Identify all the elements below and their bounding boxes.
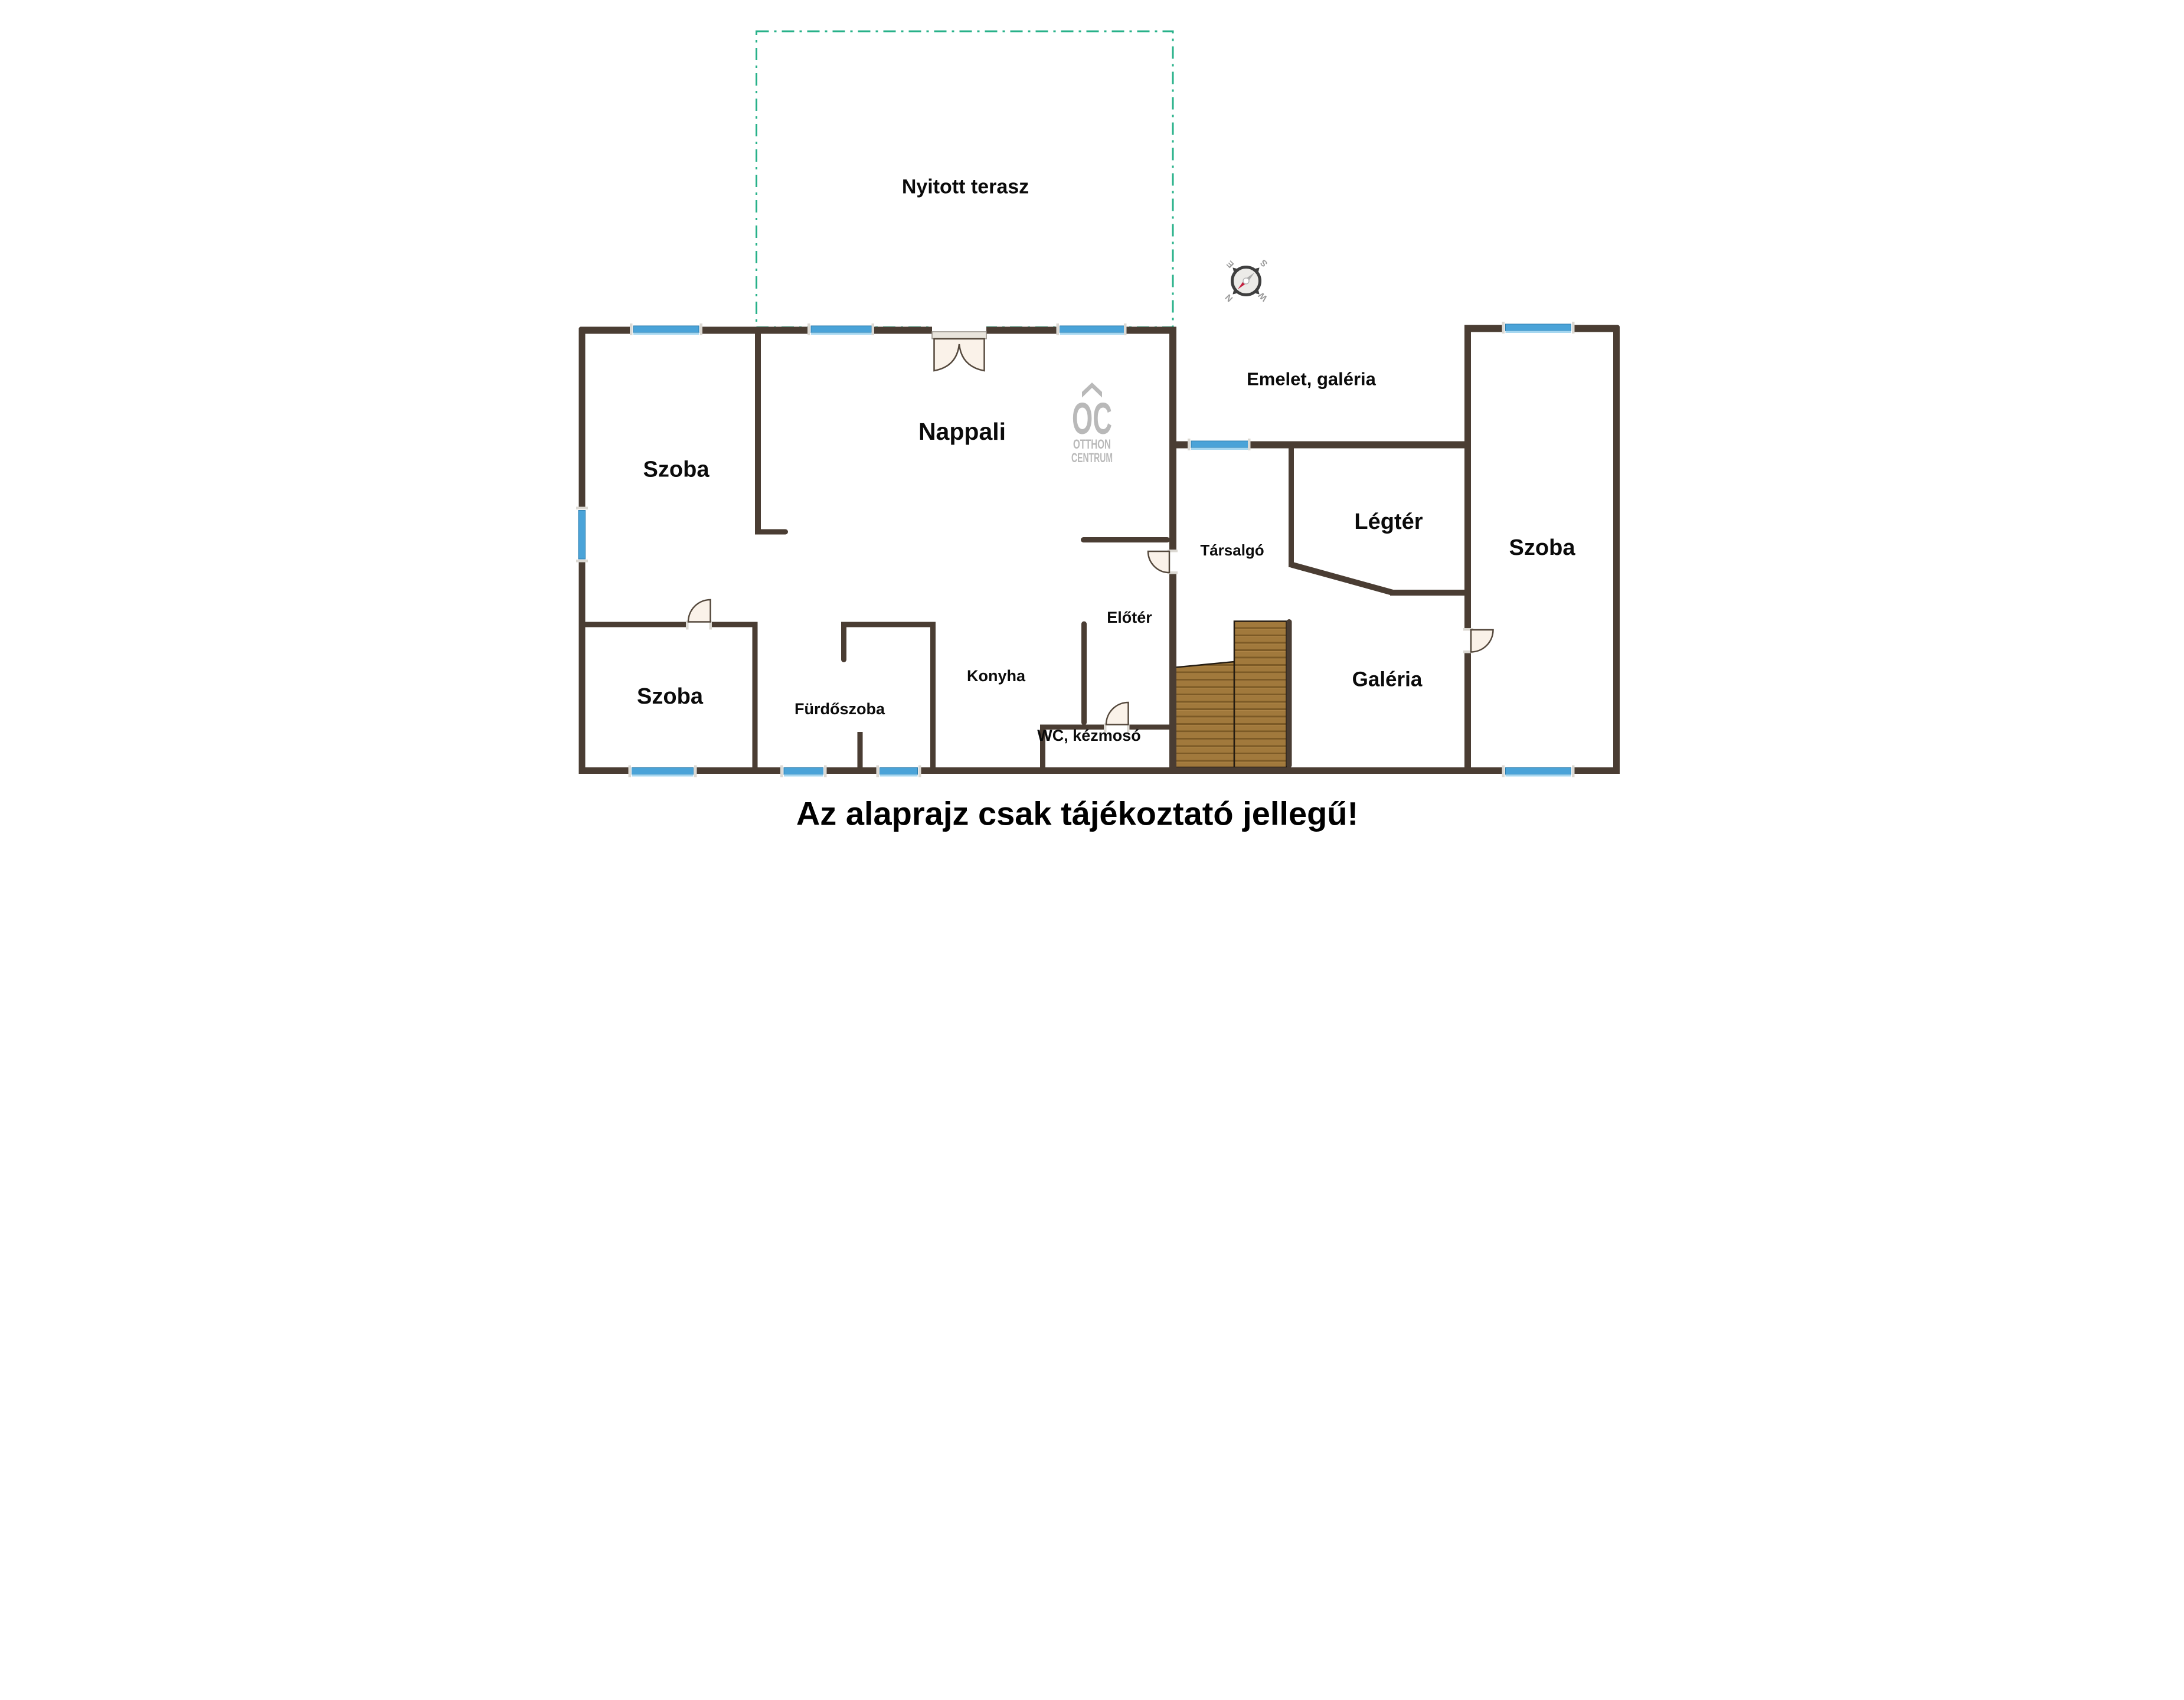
wall-furdo-top xyxy=(841,622,936,627)
window-szoba2-bottom xyxy=(629,766,697,777)
wall-furdo-right xyxy=(930,622,936,769)
terrace-label: Nyitott terasz xyxy=(902,176,1029,198)
wall-house-right-lower xyxy=(1169,573,1176,767)
window-szoba-top xyxy=(630,323,702,335)
logo-line1: OTTHON xyxy=(1073,437,1111,452)
window-nappali-top xyxy=(807,323,874,335)
room-label-legter: Légtér xyxy=(1354,509,1423,534)
wall-szoba2-right xyxy=(753,622,758,769)
window-nappali-top-right xyxy=(1057,323,1127,335)
room-label-nappali: Nappali xyxy=(918,418,1006,445)
wall-rightroom-right xyxy=(1613,325,1620,774)
room-label-eloter: Előtér xyxy=(1107,609,1152,626)
logo-monogram: OC xyxy=(1072,394,1112,443)
disclaimer-title: Az alaprajz csak tájékoztató jellegű! xyxy=(796,795,1358,832)
wall-szoba2-top-a xyxy=(582,622,688,627)
otthon-centrum-logo: OC OTTHON CENTRUM xyxy=(1071,382,1113,465)
window-tarsalgo-top xyxy=(1188,439,1251,450)
logo-line2: CENTRUM xyxy=(1071,450,1113,465)
wall-rightroom-left-lower xyxy=(1464,653,1471,767)
window-furdo-bottom xyxy=(780,766,827,777)
window-konyha-bottom xyxy=(877,766,921,777)
room-label-konyha: Konyha xyxy=(967,667,1026,685)
room-label-furdoszoba: Fürdőszoba xyxy=(795,700,885,718)
floor-plan-page: Nyitott terasz Emelet, galéria Szoba Nap… xyxy=(546,0,1638,850)
wall-bottom xyxy=(579,767,1620,774)
room-label-tarsalgo: Társalgó xyxy=(1200,541,1264,559)
window-rightroom-top xyxy=(1502,322,1575,334)
window-rightroom-bottom xyxy=(1502,766,1575,777)
window-left-wall xyxy=(576,507,588,563)
stairs-upper-flight xyxy=(1234,622,1287,768)
wall-house-right-upper xyxy=(1169,327,1176,552)
wall-nappali-divider-stub xyxy=(755,529,788,535)
room-label-galeria: Galéria xyxy=(1352,668,1423,691)
wall-nappali-divider xyxy=(755,334,761,535)
wall-legter-bottom xyxy=(1390,590,1464,596)
room-label-szoba-bottom-left: Szoba xyxy=(637,684,704,709)
stairs-lower-flight xyxy=(1173,662,1234,767)
upper-floor-label: Emelet, galéria xyxy=(1247,369,1377,390)
wall-szoba2-top-b xyxy=(711,622,754,627)
wall-rightroom-left-upper xyxy=(1464,325,1471,630)
wall-furdo-bottom-stub xyxy=(858,732,863,768)
wall-legter-left xyxy=(1289,449,1294,568)
wall-furdo-left-stub xyxy=(841,622,846,663)
room-label-szoba-top-left: Szoba xyxy=(643,457,710,482)
floor-plan: Nyitott terasz Emelet, galéria Szoba Nap… xyxy=(546,0,1638,850)
room-label-wc: WC, kézmosó xyxy=(1037,727,1141,744)
wall-stairs-right xyxy=(1287,619,1292,768)
wall-nappali-bottom xyxy=(1081,537,1170,542)
room-label-szoba-right: Szoba xyxy=(1509,535,1576,560)
wall-konyha-eloter xyxy=(1081,622,1087,725)
